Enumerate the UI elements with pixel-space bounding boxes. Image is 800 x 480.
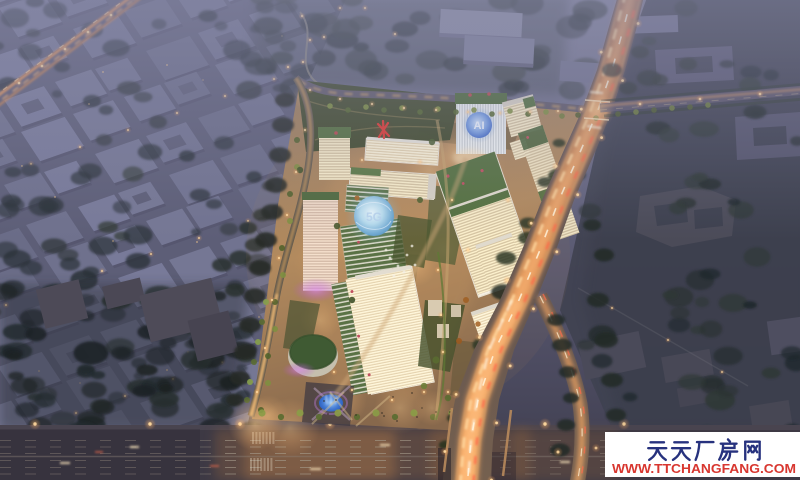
svg-text:WWW.TTCHANGFANG.COM: WWW.TTCHANGFANG.COM xyxy=(612,461,796,476)
